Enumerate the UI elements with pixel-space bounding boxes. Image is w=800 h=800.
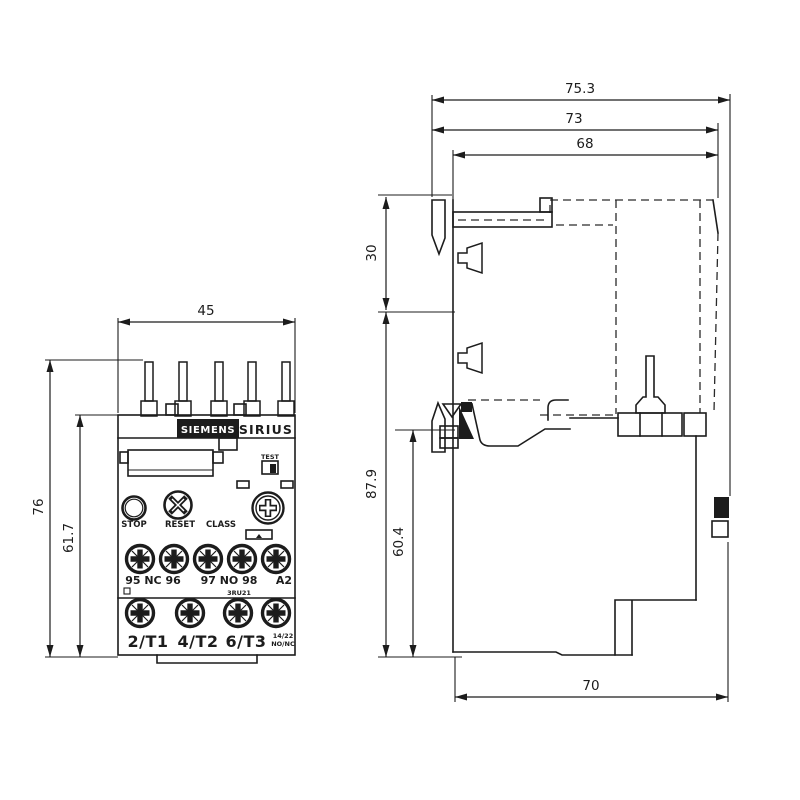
trip-lever-pin bbox=[636, 356, 665, 413]
dim-side-height-body: 60.4 bbox=[391, 430, 413, 657]
connector-pin bbox=[211, 362, 227, 416]
dim-side-pin-offset: 30 bbox=[364, 197, 386, 310]
adjustment-dial[interactable] bbox=[246, 493, 284, 540]
dim-front-width: 45 bbox=[118, 303, 295, 322]
class-label: CLASS bbox=[206, 520, 236, 530]
screw-terminal-a2[interactable] bbox=[263, 546, 290, 573]
terminal-label-no: 97 NO 98 bbox=[201, 574, 258, 587]
screw-terminal-4t2[interactable] bbox=[177, 600, 204, 627]
dim-front-height-total-label: 76 bbox=[31, 498, 47, 515]
contactor-phantom-outline bbox=[458, 200, 718, 415]
dim-side-height-body-label: 60.4 bbox=[391, 527, 407, 557]
terminal-label-2t1: 2/T1 bbox=[127, 632, 168, 651]
dim-front-width-label: 45 bbox=[197, 303, 214, 319]
front-pins bbox=[141, 362, 294, 416]
side-terminal-cluster bbox=[618, 413, 706, 436]
connector-pin bbox=[141, 362, 157, 416]
plug-in-pin bbox=[458, 343, 482, 373]
aux-label-bottom: NO/NC bbox=[271, 640, 295, 648]
dial-pointer bbox=[256, 534, 262, 538]
dim-front-height-total: 76 bbox=[31, 360, 50, 657]
dim-side-height-total-label: 87.9 bbox=[364, 469, 380, 499]
terminal-label-4t2: 4/T2 bbox=[177, 632, 218, 651]
connector-pin bbox=[278, 362, 294, 416]
dim-side-depth-total: 75.3 bbox=[432, 81, 730, 100]
reset-knob[interactable]: RESET bbox=[165, 492, 196, 531]
relay-side-profile bbox=[432, 198, 729, 655]
bottom-mounting-hook bbox=[432, 403, 445, 452]
screw-terminal-98[interactable] bbox=[229, 546, 256, 573]
mounting-bracket bbox=[157, 655, 257, 663]
terminal-label-a2: A2 bbox=[276, 574, 292, 587]
test-slide[interactable]: TEST bbox=[237, 453, 293, 488]
top-mounting-hook bbox=[432, 200, 445, 254]
lower-terminal-row: 2/T1 4/T2 6/T3 14/22 NO/NC bbox=[127, 600, 295, 652]
dim-side-depth-mid-label: 73 bbox=[565, 111, 582, 127]
dim-side-depth-bottom: 70 bbox=[455, 678, 728, 697]
screw-terminal-95[interactable] bbox=[127, 546, 154, 573]
dim-side-depth-body: 68 bbox=[453, 136, 718, 155]
screw-terminal-96[interactable] bbox=[161, 546, 188, 573]
screw-terminal-6t3[interactable] bbox=[225, 600, 252, 627]
series-label: SIRIUS bbox=[239, 422, 293, 437]
dim-side-depth-total-label: 75.3 bbox=[565, 81, 595, 97]
plug-in-pin bbox=[458, 243, 482, 273]
test-label: TEST bbox=[261, 453, 280, 461]
dim-side-depth-mid: 73 bbox=[432, 111, 718, 130]
dim-front-height-body-label: 61.7 bbox=[61, 523, 77, 553]
dim-side-depth-bottom-label: 70 bbox=[582, 678, 599, 694]
brand-label: SIEMENS bbox=[181, 425, 235, 436]
front-foot bbox=[615, 600, 696, 655]
dimension-drawing: SIEMENS SIRIUS TEST STOP bbox=[0, 0, 800, 800]
front-protrusion bbox=[714, 497, 729, 518]
dim-side-height-total: 87.9 bbox=[364, 312, 386, 657]
marker-square bbox=[124, 588, 130, 594]
aux-label-top: 14/22 bbox=[273, 632, 293, 640]
reset-label: RESET bbox=[165, 520, 195, 530]
dim-side-depth-body-label: 68 bbox=[576, 136, 593, 152]
terminal-label-6t3: 6/T3 bbox=[225, 632, 266, 651]
front-view: SIEMENS SIRIUS TEST STOP bbox=[118, 362, 295, 663]
stop-button[interactable]: STOP bbox=[121, 497, 146, 531]
side-view bbox=[432, 198, 729, 655]
terminal-label-nc: 95 NC 96 bbox=[125, 574, 181, 587]
drawing-canvas: SIEMENS SIRIUS TEST STOP bbox=[0, 0, 800, 800]
brand-strip: SIEMENS SIRIUS bbox=[177, 419, 293, 450]
dim-side-pin-offset-label: 30 bbox=[364, 244, 380, 261]
upper-terminal-row: 95 NC 96 97 NO 98 A2 3RU21 bbox=[124, 546, 292, 598]
type-code-label: 3RU21 bbox=[227, 589, 251, 597]
dim-front-height-body: 61.7 bbox=[61, 415, 80, 657]
screw-terminal-97[interactable] bbox=[195, 546, 222, 573]
stop-label: STOP bbox=[121, 520, 146, 530]
screw-terminal-2t1[interactable] bbox=[127, 600, 154, 627]
setting-window bbox=[120, 450, 223, 476]
screw-terminal-aux[interactable] bbox=[263, 600, 290, 627]
